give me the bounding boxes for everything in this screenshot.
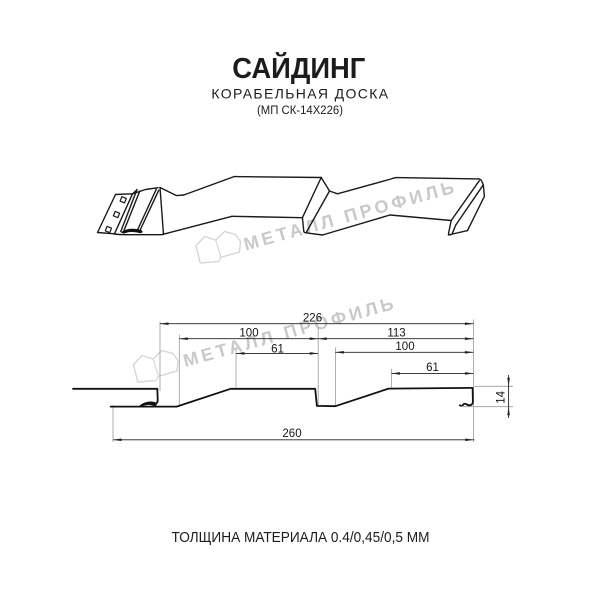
svg-text:260: 260 bbox=[282, 428, 301, 440]
svg-text:ТОЛЩИНА МАТЕРИАЛА 0.4/0,45/0,5: ТОЛЩИНА МАТЕРИАЛА 0.4/0,45/0,5 ММ bbox=[172, 529, 430, 546]
svg-text:113: 113 bbox=[387, 327, 405, 339]
svg-text:14: 14 bbox=[496, 390, 508, 403]
svg-text:61: 61 bbox=[426, 362, 439, 374]
svg-text:КОРАБЕЛЬНАЯ ДОСКА: КОРАБЕЛЬНАЯ ДОСКА bbox=[211, 85, 388, 101]
svg-text:226: 226 bbox=[303, 312, 322, 324]
svg-text:(МП СК-14Х226): (МП СК-14Х226) bbox=[257, 103, 343, 117]
svg-text:100: 100 bbox=[239, 327, 258, 339]
svg-text:61: 61 bbox=[271, 343, 284, 355]
svg-text:100: 100 bbox=[395, 341, 414, 353]
svg-text:МЕТАЛЛ ПРОФИЛЬ: МЕТАЛЛ ПРОФИЛЬ bbox=[181, 293, 399, 371]
svg-text:САЙДИНГ: САЙДИНГ bbox=[232, 52, 365, 85]
